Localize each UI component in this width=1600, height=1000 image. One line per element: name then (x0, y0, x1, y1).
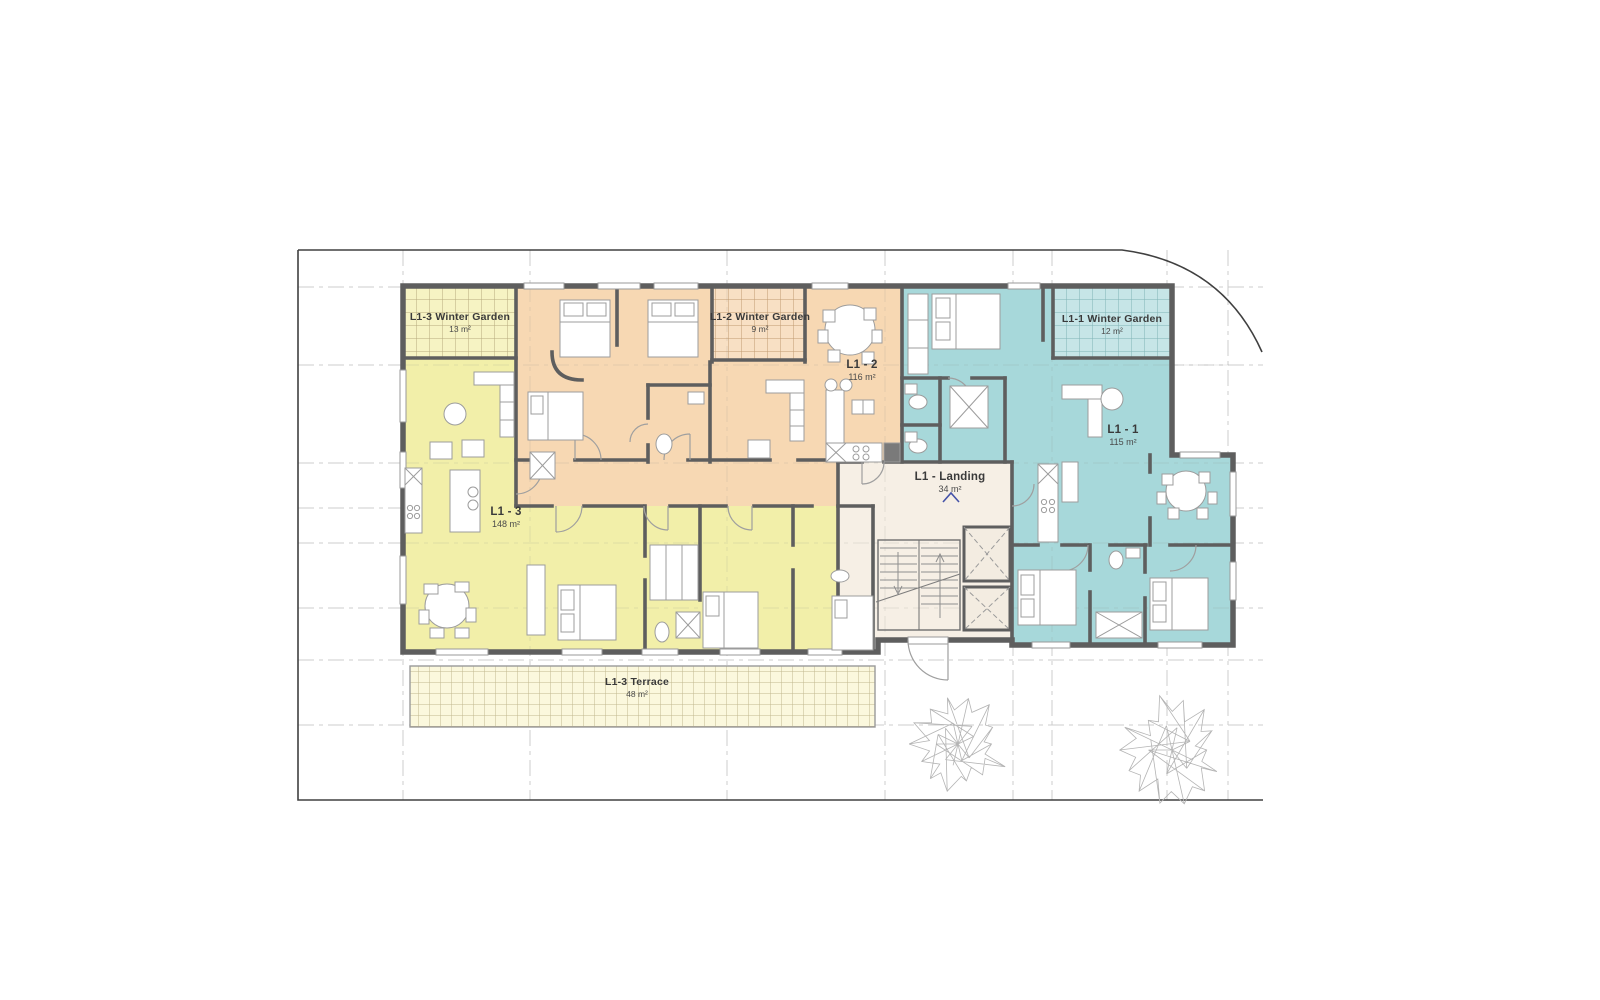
elevators (964, 527, 1010, 630)
wardrobe (1096, 612, 1142, 638)
bed (648, 300, 698, 357)
tree (1120, 696, 1217, 804)
wardrobe (527, 565, 545, 635)
bed (558, 585, 616, 640)
zone-terrace (410, 666, 875, 727)
sink (1126, 548, 1140, 558)
bed (560, 300, 610, 357)
bed (528, 392, 583, 440)
elevator-shaft (964, 587, 1010, 630)
floor-plan-drawing (0, 0, 1600, 1000)
armchair (430, 442, 452, 459)
dining-table-l1-2 (818, 305, 882, 364)
zone-winter-garden-l1-2 (712, 286, 805, 360)
tree (909, 698, 1005, 792)
bed (932, 294, 1000, 349)
wardrobe (950, 386, 988, 428)
toilet (1109, 551, 1123, 569)
coffee-table-l1-3 (444, 403, 466, 425)
zone-winter-garden-l1-1 (1053, 286, 1172, 358)
bed (832, 596, 873, 650)
armchair (462, 440, 484, 457)
toilet (831, 570, 849, 582)
closet-l1-1 (908, 294, 928, 374)
floor-plan-canvas: L1-3 Winter Garden 13 m² L1-2 Winter Gar… (0, 0, 1600, 1000)
elevator-shaft (964, 527, 1010, 581)
bed (1018, 570, 1076, 625)
bed (1150, 578, 1208, 630)
bed (703, 592, 758, 648)
wardrobe (530, 452, 555, 479)
side-table (748, 440, 770, 458)
zone-winter-garden-l1-3 (403, 286, 516, 358)
